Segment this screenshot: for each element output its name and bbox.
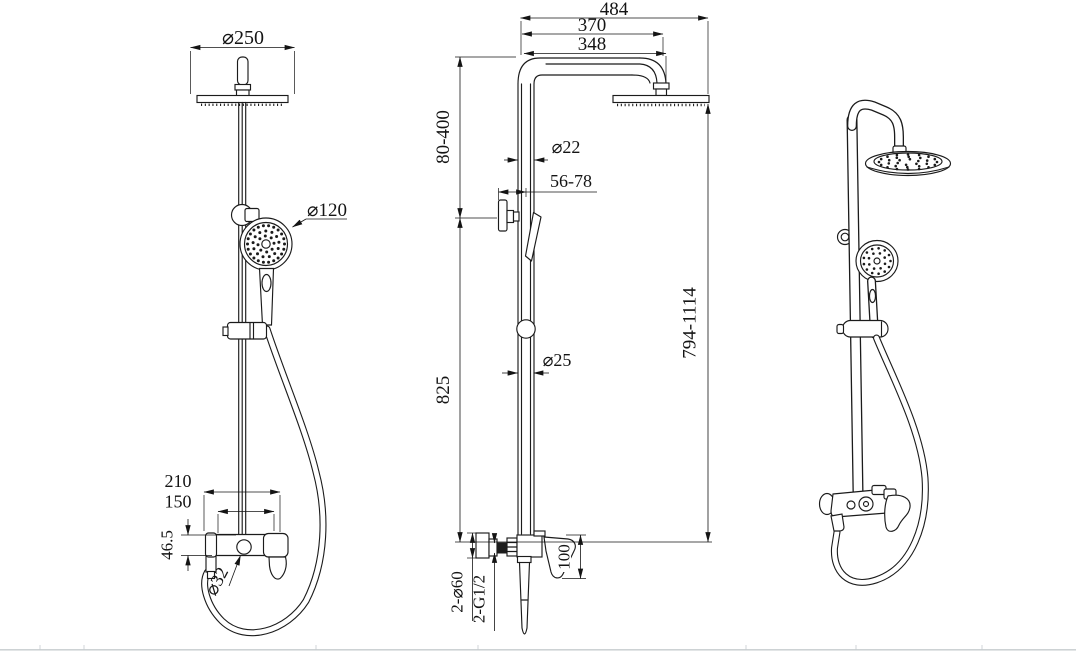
perspective-view bbox=[820, 105, 951, 583]
wall-flange bbox=[476, 533, 489, 558]
dim-arm-reach: 370 bbox=[578, 15, 607, 36]
bottom-table-edge bbox=[0, 645, 1076, 650]
dim-lower-pipe-diameter: ⌀25 bbox=[543, 350, 572, 370]
dim-overall-height-range: 794-1114 bbox=[680, 287, 701, 359]
hose-outlet-persp bbox=[831, 514, 844, 531]
side-view: 484 370 348 80-400 825 bbox=[433, 0, 712, 634]
rain-head-plate-side bbox=[613, 96, 709, 103]
slider-knob-side bbox=[517, 320, 535, 338]
dim-valve-width: 210 bbox=[165, 471, 192, 491]
rain-head-plate bbox=[197, 96, 288, 103]
technical-drawing-page: ⌀250 ⌀120 bbox=[0, 0, 1076, 652]
dim-connection-thread: 2-G1/2 bbox=[470, 575, 489, 623]
thread-connection bbox=[497, 543, 507, 553]
wall-bracket bbox=[499, 200, 508, 231]
dim-head-diameter: ⌀250 bbox=[222, 27, 264, 49]
dim-upper-pipe-diameter: ⌀22 bbox=[552, 137, 581, 157]
lever-handle-front bbox=[264, 534, 289, 558]
dim-wall-clearance: 56-78 bbox=[550, 171, 592, 191]
dim-column-height: 825 bbox=[433, 376, 454, 405]
valve-body-side bbox=[517, 535, 542, 557]
dim-valve-drop: 100 bbox=[555, 544, 574, 570]
mode-button bbox=[262, 275, 271, 292]
handset-profile bbox=[526, 213, 542, 262]
dim-top-adjust-range: 80-400 bbox=[433, 110, 454, 164]
dim-hand-shower-diameter: ⌀120 bbox=[307, 200, 347, 221]
dim-escutcheon-spec: 2-⌀60 bbox=[448, 571, 467, 612]
dim-inlet-spacing: 150 bbox=[165, 492, 192, 512]
shower-system-drawing: ⌀250 ⌀120 bbox=[0, 0, 1076, 652]
lever-handle-persp bbox=[885, 495, 910, 531]
diverter-knob bbox=[237, 540, 251, 554]
dim-valve-body-height: 46.5 bbox=[158, 530, 177, 560]
dim-arm-length: 348 bbox=[578, 34, 607, 55]
slide-bracket bbox=[228, 323, 267, 340]
front-view: ⌀250 ⌀120 bbox=[158, 27, 348, 633]
ceiling-inlet bbox=[238, 57, 249, 85]
